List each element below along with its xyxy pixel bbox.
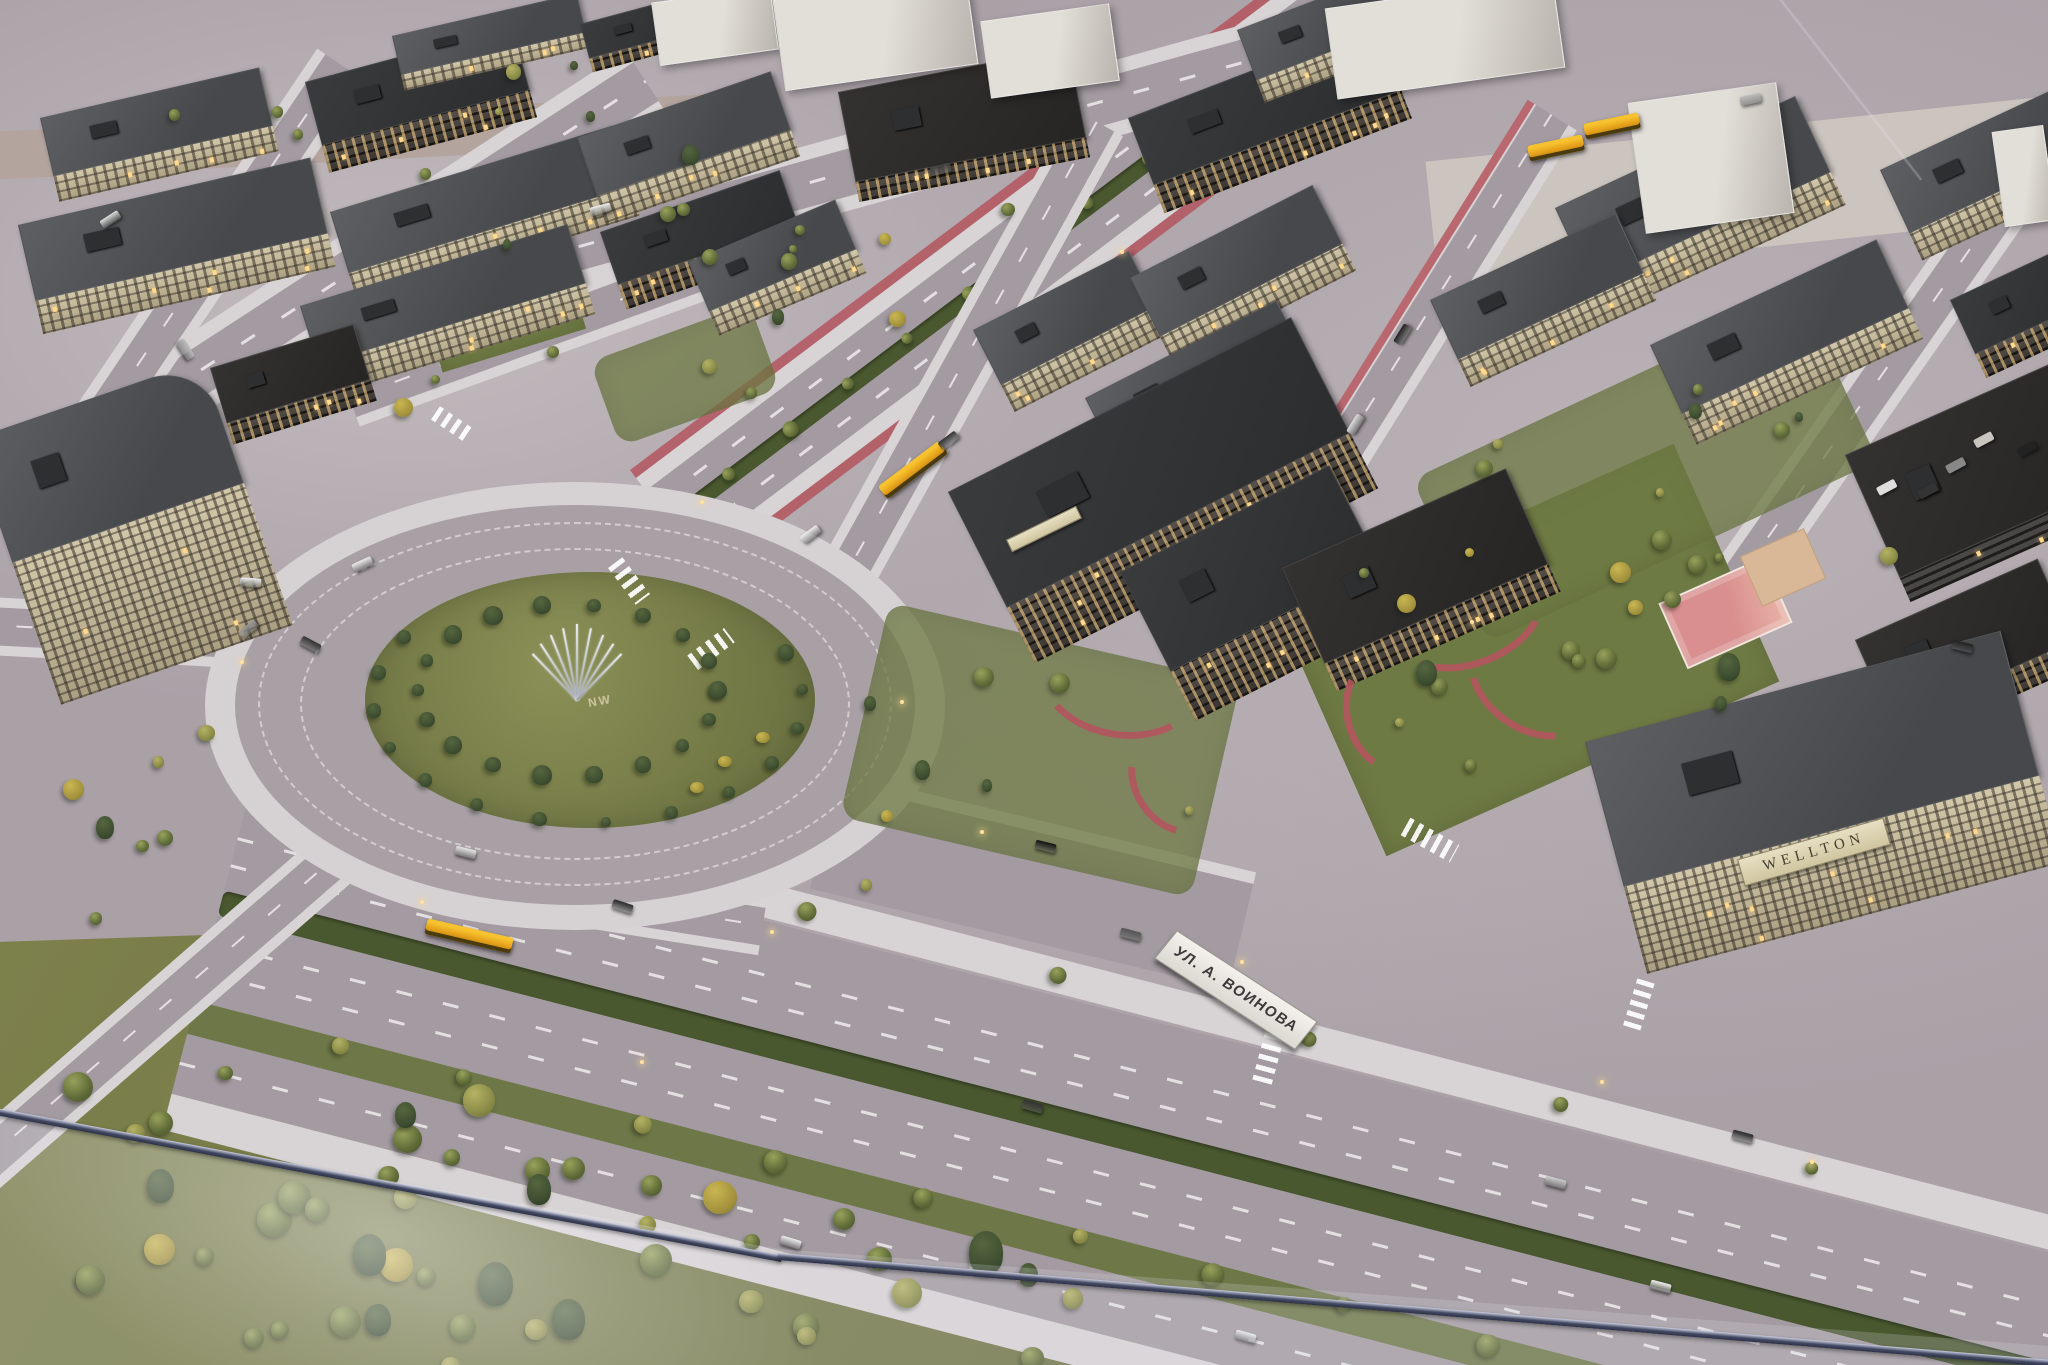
roof-box <box>83 227 122 252</box>
tree <box>1465 548 1474 557</box>
street-lamp-glow <box>1240 960 1244 964</box>
roof-box <box>1477 291 1505 315</box>
car <box>240 577 262 587</box>
island-bush <box>444 625 463 644</box>
street-lamp-glow <box>700 500 704 504</box>
tree <box>982 779 992 791</box>
roof-box <box>623 135 651 156</box>
island-bush <box>701 653 717 669</box>
tree <box>1610 562 1631 583</box>
tree <box>393 1125 422 1154</box>
roof-box <box>725 257 747 275</box>
yellow-bush <box>718 756 732 767</box>
roof-box <box>891 106 923 131</box>
roof-box <box>433 35 457 49</box>
island-rim-bush <box>397 630 411 644</box>
tree <box>833 1208 855 1230</box>
street-lamp-glow <box>1600 1080 1604 1084</box>
tree <box>1664 591 1681 608</box>
tree <box>641 1175 662 1196</box>
island-bush <box>483 606 503 626</box>
island-rim-bush <box>723 786 735 798</box>
tree <box>1688 555 1707 574</box>
tree <box>703 1181 736 1214</box>
island-rim-bush <box>665 806 678 819</box>
tree <box>96 816 114 839</box>
tree <box>1465 759 1477 771</box>
tree <box>1715 553 1723 561</box>
tree <box>1476 460 1493 477</box>
island-bush <box>444 736 462 754</box>
roof-box <box>1014 322 1039 344</box>
tree <box>1774 422 1790 438</box>
island-bush <box>676 628 690 642</box>
tree <box>90 912 103 925</box>
street-lamp-glow <box>1810 1160 1814 1164</box>
roof-box <box>643 229 669 248</box>
lit-window <box>209 157 214 163</box>
island-rim-bush <box>471 798 484 811</box>
yellow-bush <box>756 732 770 743</box>
roof-box <box>393 203 431 227</box>
tree <box>527 1174 551 1204</box>
island-bush <box>635 756 651 772</box>
lit-window <box>305 248 310 254</box>
tree <box>394 398 413 417</box>
lit-window <box>127 172 132 178</box>
island-rim-bush <box>419 773 432 786</box>
island-bush <box>419 712 434 727</box>
parked-car-roof <box>2016 440 2038 457</box>
street-lamp-glow <box>1470 620 1474 624</box>
tree <box>495 108 502 115</box>
island-rim-bush <box>765 756 779 770</box>
tree <box>1001 203 1015 217</box>
lit-window <box>152 288 157 294</box>
island-rim-bush <box>384 742 396 754</box>
tree <box>781 253 797 269</box>
street-lamp-glow <box>980 830 984 834</box>
island-bush <box>702 713 715 726</box>
tree <box>1718 653 1740 681</box>
tree <box>136 840 149 853</box>
tree <box>503 239 512 250</box>
lit-window <box>924 174 929 180</box>
tree <box>772 309 785 325</box>
roof-box <box>613 23 632 35</box>
lit-window <box>260 148 265 154</box>
tree <box>1693 384 1704 395</box>
tree <box>915 760 931 779</box>
lit-window <box>1026 158 1031 164</box>
roof-box <box>1177 266 1206 290</box>
tree <box>1880 547 1898 565</box>
lit-window <box>550 45 555 51</box>
roof-box <box>1278 25 1302 44</box>
tree <box>889 311 905 327</box>
island-rim-bush <box>367 703 381 717</box>
island-rim-bush <box>778 644 794 660</box>
roof-box <box>89 120 118 139</box>
island-rim-bush <box>371 665 386 680</box>
scale-model-photo: NW УЛ. А. ВОИНОВА WELLTON <box>0 0 2048 1365</box>
tree <box>562 1157 585 1180</box>
roof-box <box>1681 751 1739 796</box>
roof-box <box>1988 295 2011 315</box>
roof-box <box>1932 158 1964 184</box>
roof-box <box>245 371 266 388</box>
island-bush <box>585 766 602 783</box>
island-bush <box>412 684 424 696</box>
roof-box <box>1178 568 1214 603</box>
tree <box>864 696 877 712</box>
tree <box>1416 660 1437 686</box>
island-rim-bush <box>532 812 547 827</box>
lit-window <box>915 175 920 181</box>
tree <box>795 225 805 235</box>
tree <box>272 106 283 117</box>
tree <box>463 1084 496 1117</box>
roundabout-sculpture <box>548 590 608 700</box>
street-lamp-glow <box>1120 250 1124 254</box>
street-lamp-glow <box>640 1060 644 1064</box>
parked-car-roof <box>1945 457 1967 474</box>
island-bush <box>421 654 434 667</box>
island-bush <box>532 765 552 785</box>
lit-window <box>174 160 179 166</box>
tree <box>1628 600 1643 615</box>
street-lamp-glow <box>900 700 904 704</box>
lit-window <box>53 307 58 313</box>
tree <box>1795 412 1803 422</box>
tree <box>746 387 757 398</box>
island-rim-bush <box>791 722 803 734</box>
roof-box <box>30 452 67 489</box>
yellow-bush <box>690 782 704 793</box>
tree <box>218 1066 232 1080</box>
island-rim-bush <box>797 684 808 695</box>
tree <box>682 145 698 165</box>
street-lamp-glow <box>240 660 244 664</box>
island-bush <box>676 739 689 752</box>
tree <box>1359 568 1368 577</box>
tree <box>293 129 304 140</box>
island-bush <box>635 608 650 623</box>
tree <box>677 203 690 216</box>
tree <box>547 346 559 358</box>
lit-window <box>207 287 212 293</box>
tree <box>506 64 522 80</box>
tree <box>1715 696 1727 711</box>
roof-box <box>360 298 396 321</box>
lit-window <box>468 65 473 71</box>
street-lamp-glow <box>420 900 424 904</box>
lit-window <box>543 49 548 55</box>
tree <box>1493 439 1503 449</box>
tree <box>198 725 214 741</box>
massing-block <box>1628 82 1795 234</box>
island-bush <box>485 757 500 772</box>
sculpture-spike <box>576 635 604 701</box>
roof-box <box>1706 332 1740 360</box>
lit-window <box>213 269 218 275</box>
roof-box <box>1187 108 1222 134</box>
tree <box>881 810 893 822</box>
tree <box>570 61 577 70</box>
parked-car-roof <box>1876 479 1898 496</box>
lit-window <box>985 167 990 173</box>
parked-car-roof <box>1973 431 1995 448</box>
tree <box>169 109 181 121</box>
roof-box <box>353 84 382 105</box>
tree <box>1656 488 1664 496</box>
tree <box>395 1102 416 1128</box>
lit-window <box>304 266 309 272</box>
tree <box>63 1072 93 1102</box>
island-bush <box>709 681 728 700</box>
island-rim-bush <box>601 817 611 827</box>
street-lamp-glow <box>770 930 774 934</box>
